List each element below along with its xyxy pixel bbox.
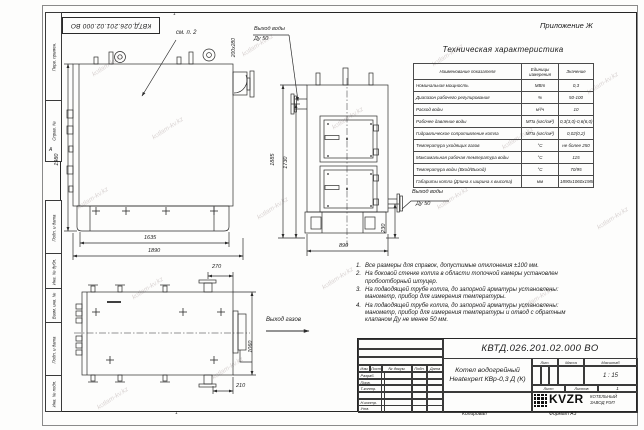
note-text: На подводящей трубе котла, до запорной а… bbox=[365, 303, 582, 325]
front-view bbox=[64, 40, 254, 260]
note-item: На боковой стенке котла в области топочн… bbox=[349, 271, 582, 286]
dim-plan-width: 1060 bbox=[249, 341, 255, 353]
product-name-line1: Котел водогрейный bbox=[455, 367, 520, 375]
kvzr-logo-text: KVZR bbox=[549, 392, 584, 406]
dim-side-width: 890 bbox=[339, 244, 348, 250]
product-name: Котел водогрейный Heatexpert КВр-0,3 Д (… bbox=[442, 358, 533, 393]
dim-front-base: 1635 bbox=[144, 236, 156, 242]
water-inlet-label-line1: Выход воды bbox=[412, 190, 443, 196]
note-text: На боковой стенке котла в области топочн… bbox=[365, 271, 582, 286]
company-line2: ЗАВОД РЭП bbox=[590, 400, 617, 406]
dim-side-height-outlet: 1730 bbox=[284, 157, 290, 169]
dim-front-height: 1980 bbox=[55, 154, 61, 166]
plan-view bbox=[74, 272, 309, 394]
kvzr-logo-icon bbox=[534, 394, 547, 407]
drawing-sheet: kotlam-kv.kz kotlam-kv.kz kotlam-kv.kz k… bbox=[0, 0, 644, 430]
notes-list: Все размеры для справок, допустимые откл… bbox=[349, 263, 582, 326]
title-block: Изм. Лист № докум. Подп. Дата Разраб. Пр… bbox=[357, 338, 637, 412]
logo-cell bbox=[531, 391, 638, 413]
scale-value: 1 : 15 bbox=[583, 365, 638, 386]
see-note-label: см. п. 2 bbox=[176, 30, 196, 36]
water-inlet-label-line2: Ду 50 bbox=[416, 202, 430, 208]
note-item: Все размеры для справок, допустимые откл… bbox=[349, 263, 582, 270]
doc-number: КВТД.026.201.02.000 ВО bbox=[442, 339, 637, 359]
company-line1: КОТЕЛЬНЫЙ bbox=[590, 394, 617, 400]
gas-outlet-label: Выход газов bbox=[266, 317, 301, 323]
water-outlet-label-line2: Ду 50 bbox=[254, 37, 268, 43]
mass-value bbox=[557, 365, 585, 386]
product-name-line2: Heatexpert КВр-0,3 Д (К) bbox=[449, 376, 525, 384]
dim-plan-flue-offset: 270 bbox=[212, 265, 221, 271]
note-text: Все размеры для справок, допустимые откл… bbox=[365, 263, 539, 270]
dim-side-height-total: 1885 bbox=[271, 154, 277, 166]
note-item: На подводящей трубе котла, до запорной а… bbox=[349, 303, 582, 325]
dim-front-length: 1890 bbox=[148, 249, 160, 255]
dim-side-inlet-height: 230 bbox=[382, 224, 388, 233]
flue-size-label: 200х280 bbox=[232, 38, 237, 57]
water-outlet-label-line1: Выход воды bbox=[254, 27, 285, 33]
copied-label: Копировал bbox=[462, 412, 487, 417]
format-label: Формат А3 bbox=[549, 412, 576, 417]
side-view bbox=[253, 35, 449, 256]
dim-plan-flue-side: 210 bbox=[236, 384, 245, 390]
note-item: На подводящей трубе котла, до запорной а… bbox=[349, 287, 582, 302]
note-text: На подводящей трубе котла, до запорной а… bbox=[365, 287, 582, 302]
company-name: КОТЕЛЬНЫЙ ЗАВОД РЭП bbox=[590, 394, 617, 406]
